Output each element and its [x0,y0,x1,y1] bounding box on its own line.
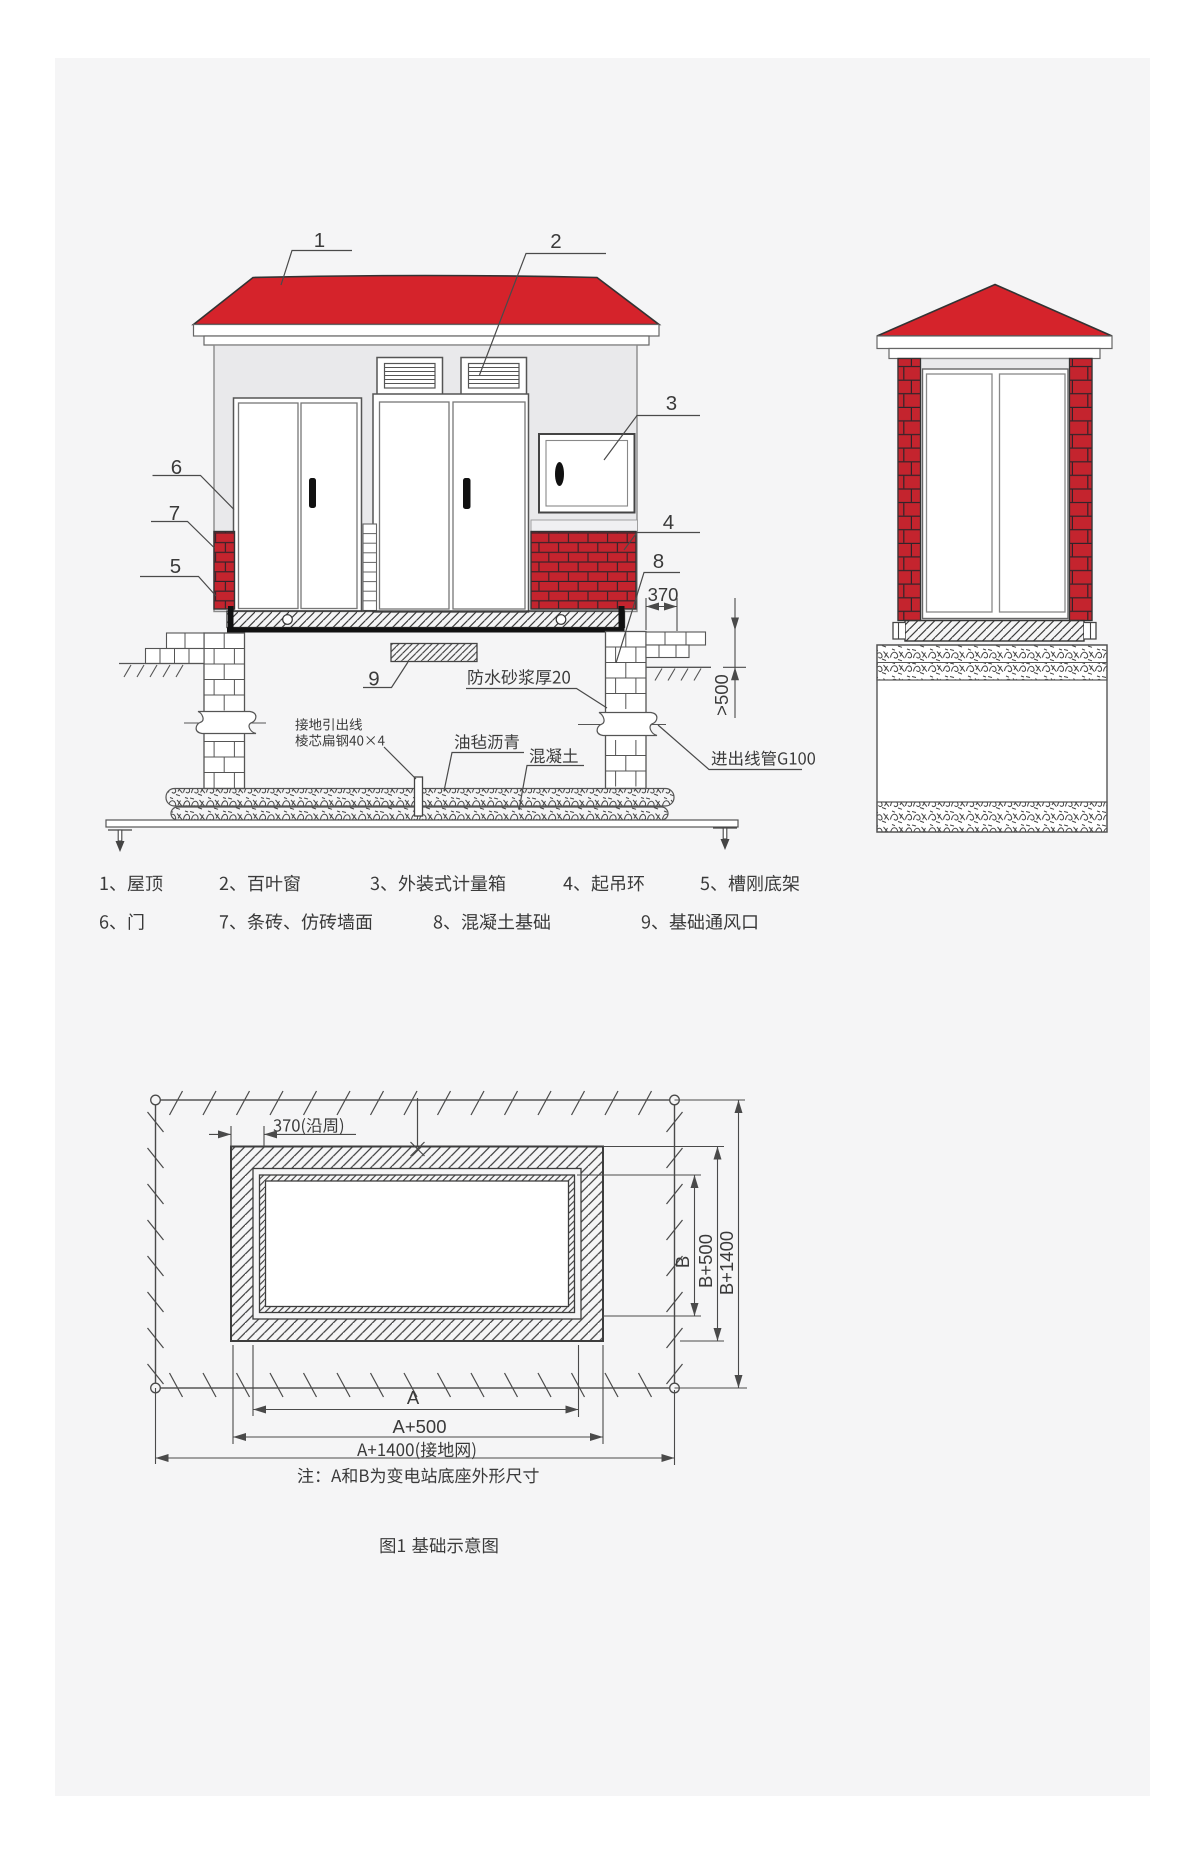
svg-text:>500: >500 [711,674,732,716]
svg-text:4: 4 [663,511,674,534]
svg-text:1: 1 [314,229,325,252]
svg-text:B: B [672,1256,693,1268]
svg-text:2: 2 [550,230,561,253]
svg-text:370: 370 [648,584,679,605]
svg-text:B+500: B+500 [695,1234,716,1288]
svg-text:3: 3 [666,392,677,415]
svg-text:5: 5 [170,555,181,578]
svg-text:A: A [407,1387,420,1408]
svg-text:A+500: A+500 [392,1416,446,1437]
svg-text:B+1400: B+1400 [716,1231,737,1295]
svg-text:8: 8 [653,550,664,573]
